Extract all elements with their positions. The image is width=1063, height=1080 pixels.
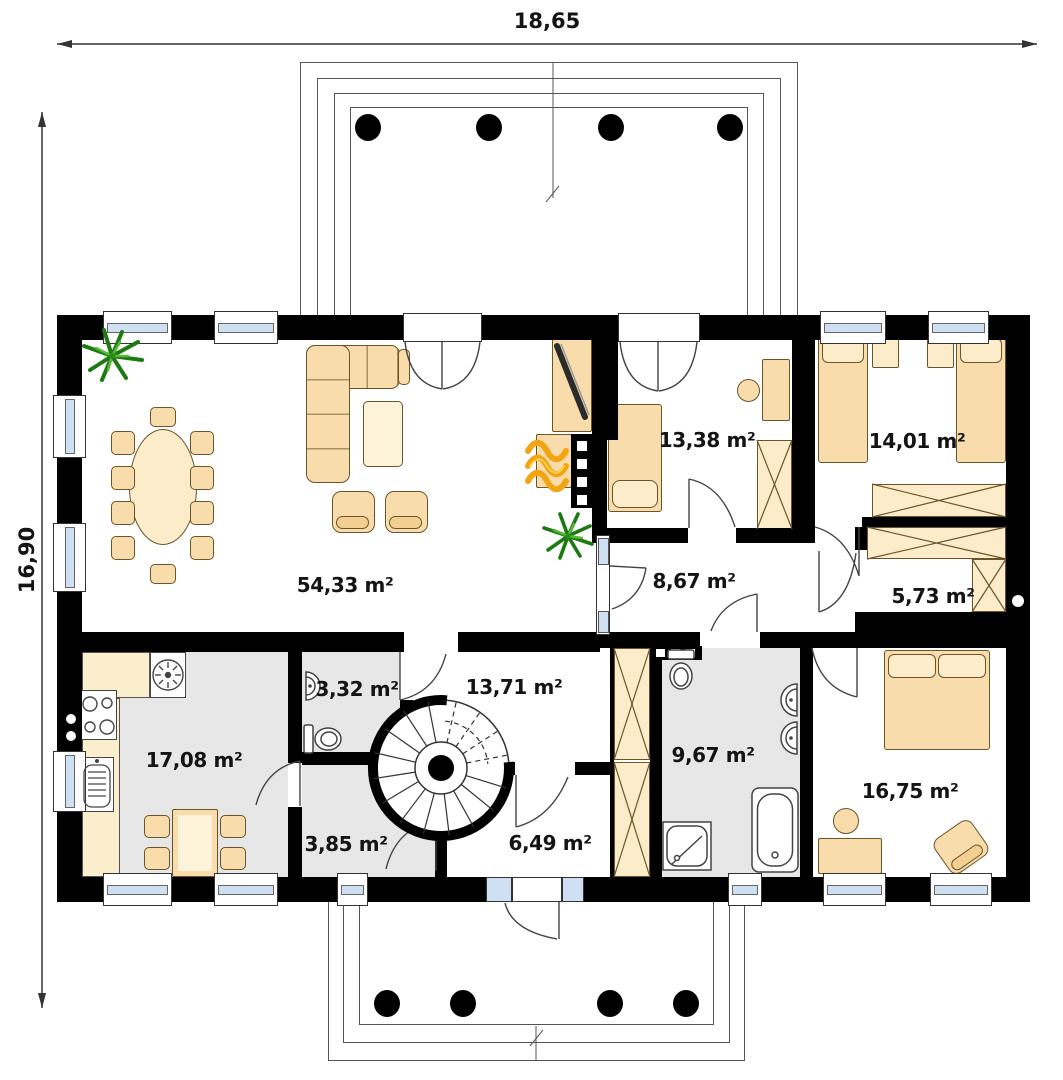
wardrobe	[757, 440, 792, 529]
room-area-label-bedroom2: 14,01 m²	[869, 429, 966, 453]
entrance-door	[512, 877, 562, 902]
room-area-label-living: 54,33 m²	[297, 573, 394, 597]
armchair	[385, 491, 428, 533]
wall	[82, 632, 404, 652]
wall	[592, 340, 618, 440]
room-area-label-hallway: 8,67 m²	[652, 569, 735, 593]
tv-cabinet	[552, 332, 592, 432]
room-area-label-wc: 3,32 m²	[315, 677, 398, 701]
dimension-height-label: 16,90	[15, 527, 39, 593]
dimension-width-label: 18,65	[514, 9, 580, 33]
chimney-block	[571, 434, 593, 508]
wall	[288, 652, 302, 763]
wall	[575, 762, 614, 775]
coffee-table	[363, 401, 403, 467]
room-area-label-corridor: 3,85 m²	[304, 832, 387, 856]
armchair	[332, 491, 375, 533]
dining-chair	[190, 431, 214, 455]
dining-chair	[111, 431, 135, 455]
wardrobe	[872, 484, 1006, 517]
dining-chair	[111, 466, 135, 490]
porch-column	[374, 990, 400, 1017]
window	[103, 873, 172, 906]
dining-chair	[150, 407, 176, 427]
floor-plan: 18,65 16,90	[0, 0, 1063, 1080]
wall	[458, 632, 600, 652]
kitchen-chair	[220, 847, 246, 870]
porch-column	[598, 114, 624, 141]
room-area-label-vestibule: 6,49 m²	[508, 831, 591, 855]
doorway-sidelight	[598, 538, 609, 565]
wall	[650, 648, 662, 877]
kitchen-chair	[144, 815, 170, 838]
room-corridor	[302, 765, 435, 877]
dimension-width-line	[57, 40, 1037, 48]
desk	[762, 359, 790, 421]
dining-chair	[190, 501, 214, 525]
cabinet	[614, 762, 650, 877]
window	[930, 873, 992, 906]
terrace-bottom-outline	[359, 902, 714, 1025]
doorway-sidelight	[598, 611, 609, 633]
porch-column	[450, 990, 476, 1017]
window	[823, 873, 886, 906]
window	[214, 311, 278, 344]
room-area-label-kitchen: 17,08 m²	[146, 748, 243, 772]
window	[337, 873, 368, 906]
wall	[302, 752, 400, 765]
porch-column	[355, 114, 381, 141]
room-area-label-stair-hall: 13,71 m²	[466, 675, 563, 699]
wall	[288, 807, 302, 877]
window	[53, 395, 86, 458]
dining-chair	[150, 564, 176, 584]
wall	[855, 612, 1006, 648]
window	[928, 311, 989, 344]
terrace-door	[403, 313, 482, 342]
wardrobe	[972, 559, 1006, 612]
wall	[1006, 315, 1030, 902]
window	[53, 523, 86, 592]
wall	[435, 837, 447, 877]
dining-chair	[190, 536, 214, 560]
dining-chair	[111, 536, 135, 560]
porch-column	[476, 114, 502, 141]
wall	[500, 762, 515, 775]
double-bed	[884, 650, 990, 750]
porch-column	[717, 114, 743, 141]
cabinet	[614, 648, 650, 760]
wall	[855, 527, 867, 550]
wall	[800, 648, 813, 877]
porch-column	[597, 990, 623, 1017]
dining-table	[129, 429, 197, 545]
sofa	[306, 345, 350, 483]
window	[103, 311, 172, 344]
desk	[818, 838, 882, 874]
kitchen-chair	[220, 815, 246, 838]
dimension-height-line	[38, 112, 46, 1008]
room-area-label-bathroom: 9,67 m²	[671, 743, 754, 767]
window	[728, 873, 762, 906]
wall	[400, 700, 413, 777]
terrace-door	[618, 313, 700, 342]
dining-chair	[190, 466, 214, 490]
stove	[79, 690, 117, 740]
room-area-label-closet: 5,73 m²	[891, 584, 974, 608]
window	[53, 751, 86, 812]
window	[214, 873, 278, 906]
terrace-top-outline	[350, 107, 748, 316]
entrance-sidelight	[486, 877, 512, 902]
room-wc	[302, 652, 400, 765]
wardrobe	[867, 527, 1006, 559]
sofa-armrest	[398, 349, 410, 385]
entrance-sidelight	[562, 877, 584, 902]
wall	[592, 440, 607, 538]
room-area-label-bedroom1: 13,38 m²	[659, 428, 756, 452]
fireplace	[536, 434, 572, 488]
window	[820, 311, 886, 344]
extractor-unit	[150, 652, 186, 698]
wall	[862, 517, 1006, 527]
wall	[792, 340, 815, 543]
bed	[818, 334, 868, 463]
kitchen-chair	[144, 847, 170, 870]
desk-chair	[833, 808, 859, 834]
kitchen-table	[172, 809, 218, 877]
dining-chair	[111, 501, 135, 525]
porch-column	[673, 990, 699, 1017]
room-area-label-master-bedroom: 16,75 m²	[862, 779, 959, 803]
desk-chair	[737, 379, 760, 402]
wall	[760, 632, 855, 648]
vent-block	[650, 646, 702, 660]
wall	[736, 528, 792, 543]
